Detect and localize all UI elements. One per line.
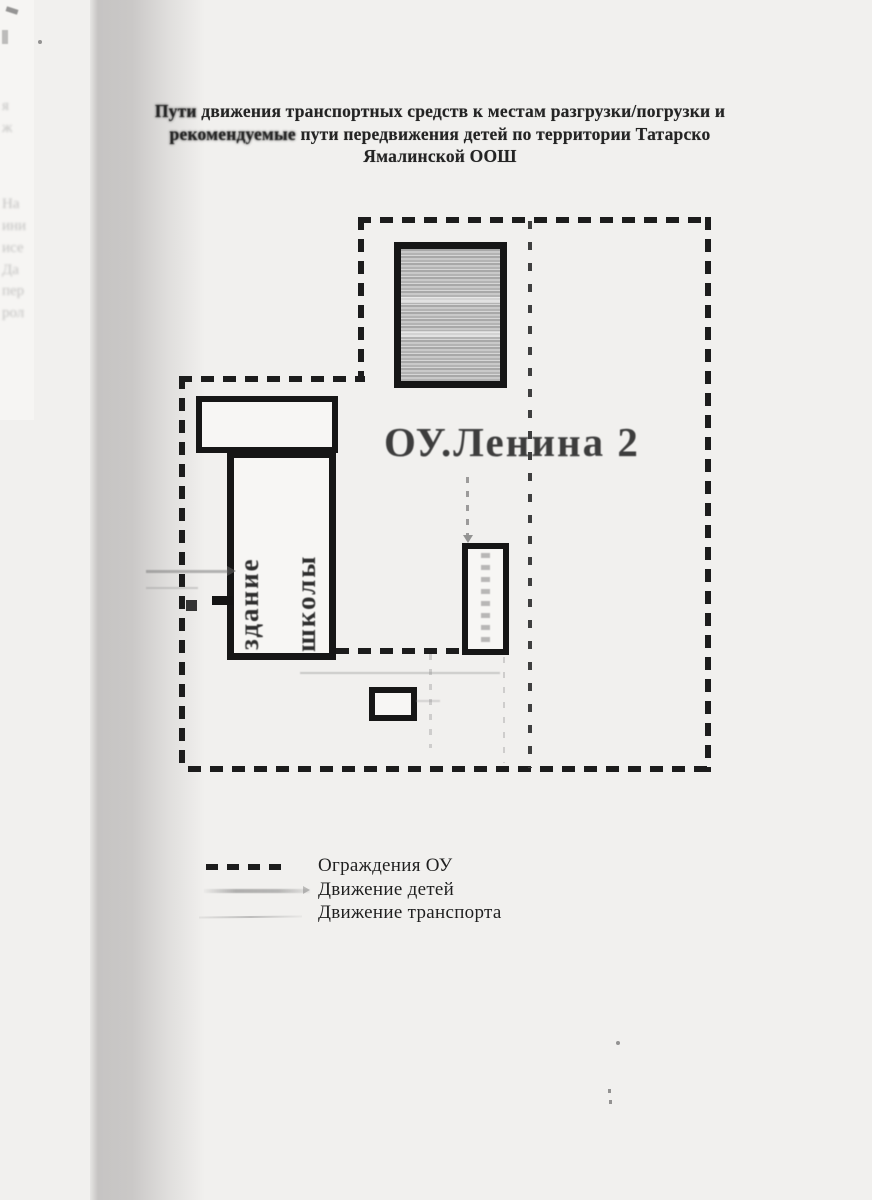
legend-label-fence: Ограждения ОУ bbox=[318, 855, 453, 877]
fence-inner-divider bbox=[528, 221, 532, 768]
school-entrance-mark bbox=[212, 596, 233, 605]
bleed-through-fragment: ж bbox=[2, 120, 12, 137]
fence-top bbox=[358, 217, 710, 223]
children-path-yard bbox=[300, 672, 500, 674]
bleed-through-fragment: Да bbox=[2, 262, 19, 279]
children-path-gate bbox=[466, 477, 469, 535]
fence-step-horizontal bbox=[179, 376, 365, 382]
legend-label-transport: Движение транспорта bbox=[318, 902, 502, 924]
bleed-through-fragment: ини bbox=[2, 218, 26, 235]
bleed-through-fragment: исе bbox=[2, 240, 24, 257]
hatch-light-band bbox=[401, 297, 500, 303]
hatch-light-band bbox=[401, 331, 500, 337]
scanned-page: яжНаиниисеДаперрол Пути движения транспо… bbox=[0, 0, 872, 1200]
title-line2-lead: рекомендуемые bbox=[170, 124, 296, 144]
scan-speck bbox=[609, 1100, 612, 1104]
small-structure bbox=[369, 687, 417, 721]
legend-label-children: Движение детей bbox=[318, 879, 454, 901]
children-path-stub bbox=[416, 700, 440, 702]
children-path-vertical-1 bbox=[429, 654, 432, 748]
title-line1-lead: Пути bbox=[155, 101, 197, 121]
fence-connector bbox=[336, 648, 464, 654]
school-building-label-word2: школы bbox=[291, 480, 322, 652]
legend-children-arrow-icon bbox=[303, 886, 310, 894]
title-line2: рекомендуемые пути передвижения детей по… bbox=[170, 124, 711, 144]
school-building-label-word1: здание bbox=[234, 468, 265, 650]
title-line1-rest: движения транспортных средств к местам р… bbox=[197, 101, 725, 121]
children-path-vertical-2 bbox=[503, 657, 505, 763]
transport-path-west-2 bbox=[146, 587, 198, 589]
page-title: Пути движения транспортных средств к мес… bbox=[110, 100, 770, 168]
bleed-through-fragment: На bbox=[2, 196, 20, 213]
fence-right bbox=[705, 217, 711, 772]
legend-transport-sample bbox=[199, 915, 302, 918]
fence-bottom bbox=[188, 766, 712, 772]
scan-speck bbox=[608, 1089, 611, 1093]
transport-path-arrow-icon bbox=[227, 566, 236, 576]
fence-left bbox=[179, 376, 185, 770]
bleed-through-fragment: рол bbox=[2, 305, 24, 322]
bleed-through-fragment: пер bbox=[2, 283, 24, 300]
annex-building bbox=[196, 396, 338, 453]
children-path-arrow-icon bbox=[463, 535, 473, 543]
legend-fence-sample bbox=[206, 864, 283, 870]
hatched-building bbox=[394, 242, 507, 388]
bleed-through-fragment: я bbox=[2, 98, 9, 115]
title-line1: Пути движения транспортных средств к мес… bbox=[155, 101, 725, 121]
scan-speck bbox=[2, 30, 8, 44]
narrow-outbuilding bbox=[462, 543, 509, 655]
street-label: ОУ.Ленина 2 bbox=[384, 418, 640, 466]
scan-speck bbox=[616, 1041, 620, 1045]
faint-illegible-label bbox=[481, 553, 490, 645]
gate-mark bbox=[186, 600, 197, 611]
bleed-through-strip: яжНаиниисеДаперрол bbox=[0, 0, 34, 420]
legend-children-sample bbox=[204, 889, 310, 893]
transport-path-west bbox=[146, 570, 228, 573]
fence-step-vertical bbox=[358, 217, 364, 381]
title-line2-rest: пути передвижения детей по территории Та… bbox=[296, 124, 711, 144]
scan-speck bbox=[38, 40, 42, 44]
title-line3: Ямалинской ООШ bbox=[363, 146, 516, 166]
